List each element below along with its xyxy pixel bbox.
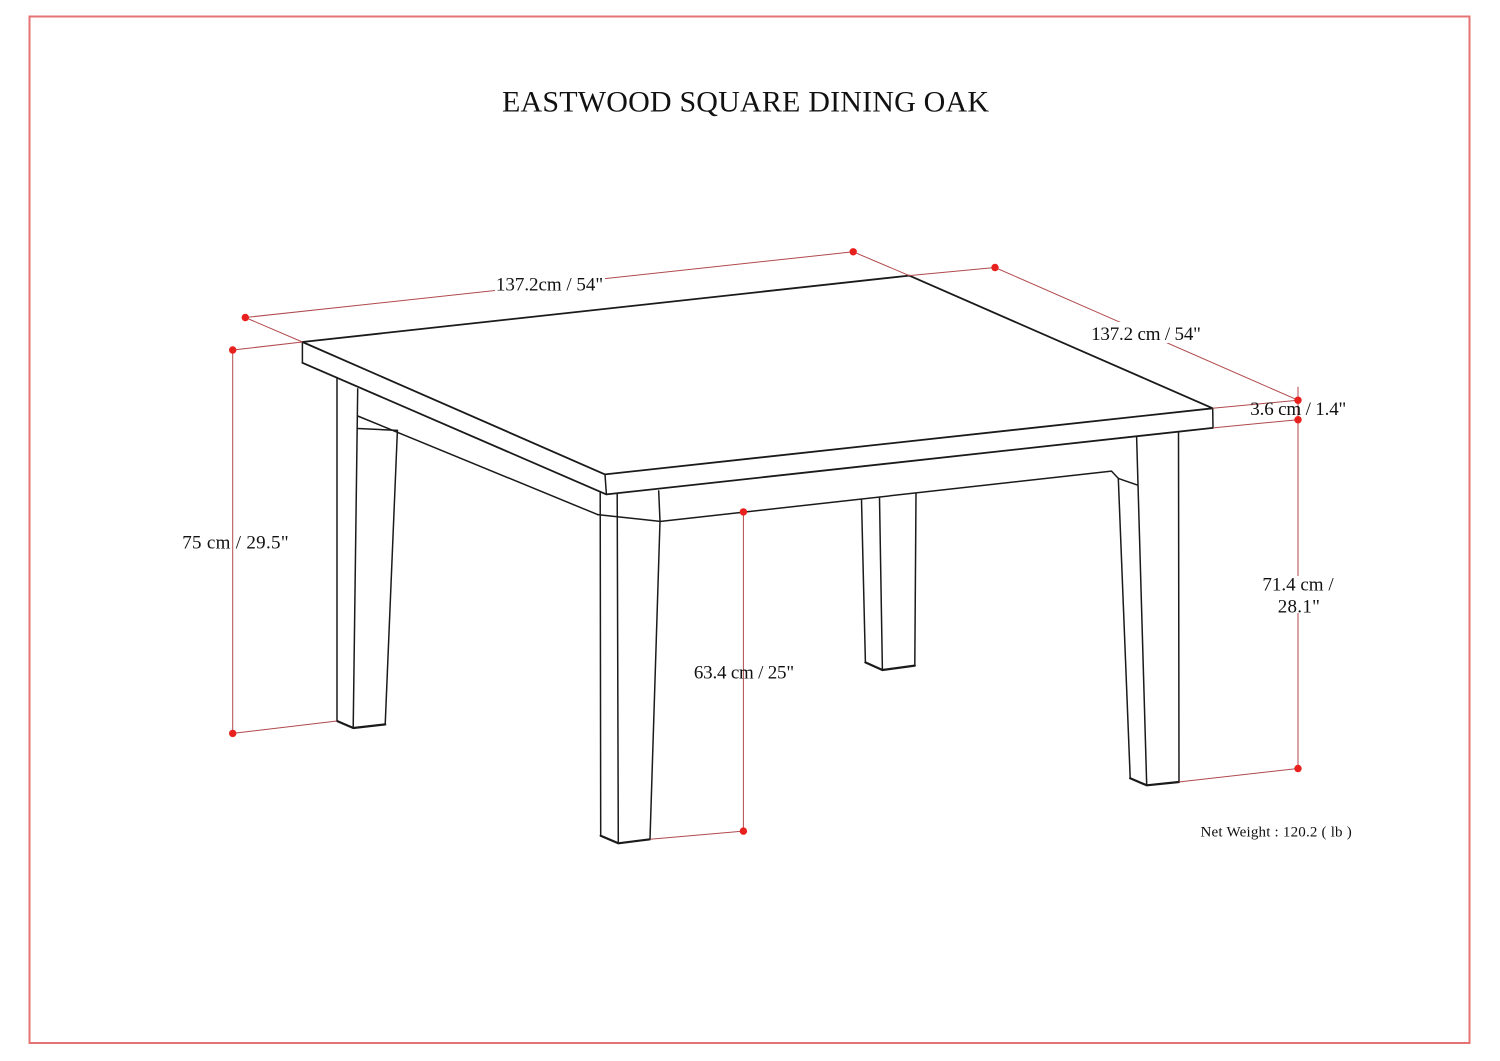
svg-text:63.4 cm / 25": 63.4 cm / 25" xyxy=(694,662,794,683)
svg-text:137.2 cm / 54": 137.2 cm / 54" xyxy=(1091,324,1201,345)
svg-text:3.6 cm / 1.4": 3.6 cm / 1.4" xyxy=(1250,399,1346,420)
svg-text:71.4 cm /: 71.4 cm / xyxy=(1262,575,1334,596)
svg-text:137.2cm / 54": 137.2cm / 54" xyxy=(496,275,603,296)
svg-text:EASTWOOD SQUARE DINING OAK: EASTWOOD SQUARE DINING OAK xyxy=(502,86,989,119)
svg-text:28.1": 28.1" xyxy=(1278,597,1320,618)
svg-text:75 cm / 29.5": 75 cm / 29.5" xyxy=(182,532,288,553)
svg-text:Net Weight : 120.2 ( lb ): Net Weight : 120.2 ( lb ) xyxy=(1201,824,1352,840)
